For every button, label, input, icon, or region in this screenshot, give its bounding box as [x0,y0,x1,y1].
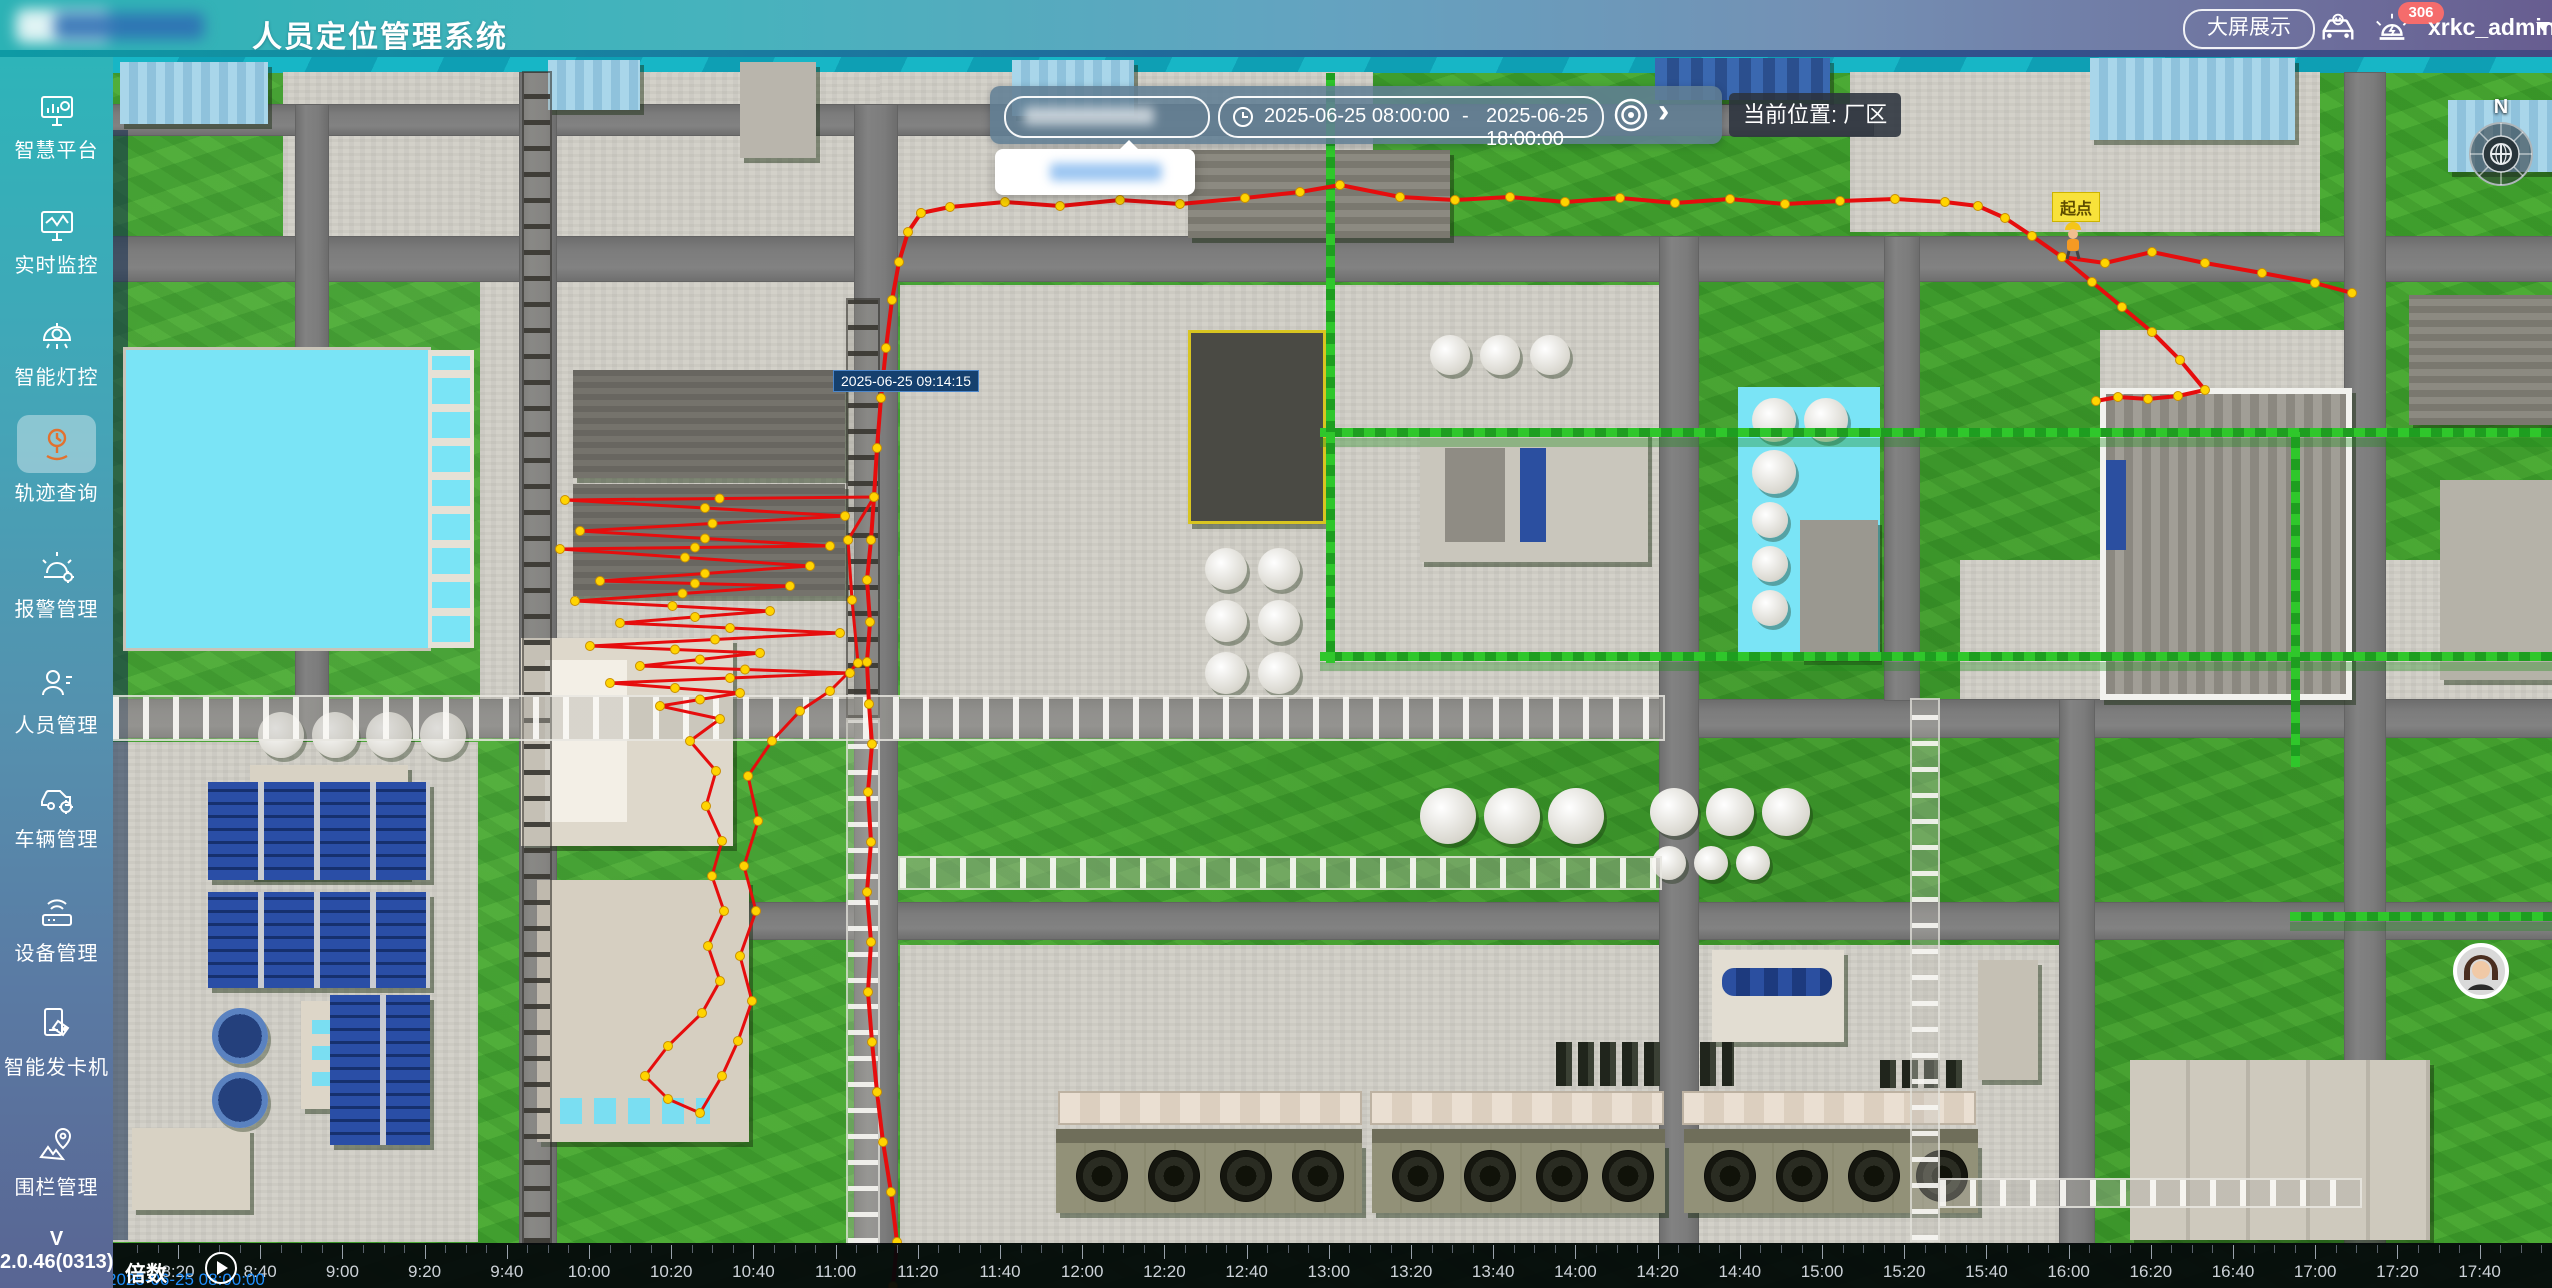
map-tank [1530,335,1570,375]
map-tank [1752,546,1788,582]
map-building [132,1128,250,1210]
map-pipe-rack [113,697,1663,739]
map-building [548,60,640,110]
sidebar-item-device-mgmt[interactable]: 设备管理 [0,893,113,966]
map-green-truss [1326,73,1335,663]
map-fan [1220,1150,1272,1202]
map-fan [1464,1150,1516,1202]
map-sphere [1484,788,1540,844]
sidebar-item-vehicle-mgmt[interactable]: 车辆管理 [0,779,113,852]
clock-icon [1232,106,1254,128]
map-pipe-rack [524,73,550,1243]
map-building [1978,960,2038,1080]
map-cooler-strip [1372,1093,1662,1123]
map-pipe-rack [848,300,878,720]
map-fan [1704,1150,1756,1202]
sidebar-item-smart-platform[interactable]: 智慧平台 [0,92,113,163]
map-green-truss [1320,652,2552,661]
map-fan [1076,1150,1128,1202]
map-building [120,62,268,124]
map-fan [1292,1150,1344,1202]
map-detail [2106,460,2126,550]
sidebar-item-realtime-monitor[interactable]: 实时监控 [0,207,113,278]
map-tank [1258,600,1300,642]
trajectory-tooltip: 2025-06-25 09:14:15 [833,370,979,392]
compass[interactable]: N [2466,96,2536,194]
sidebar-item-card-dispenser[interactable]: 智能发卡机 [0,1005,113,1080]
monitor-pulse-icon [38,207,76,243]
map-windows [560,1098,710,1124]
play-track-button[interactable]: › [1658,92,1669,131]
map-building [1800,520,1878,660]
redacted-search-text [1024,107,1154,125]
map-building [740,62,816,158]
sidebar-item-smart-lighting[interactable]: 智能灯控 [0,319,113,390]
map-building-wing [545,660,627,822]
dropdown-caret [1120,140,1138,149]
map-building [573,484,845,596]
map-solar-array [208,782,430,880]
vehicle-icon[interactable] [2318,10,2358,48]
start-point-label: 起点 [2052,192,2100,222]
map-road [2060,700,2094,1243]
map-fan [1848,1150,1900,1202]
timeline-play-button[interactable] [205,1252,237,1284]
map-detail [1520,448,1546,542]
map-tank [1258,548,1300,590]
track-query-icon [37,423,77,463]
app-header: 人员定位管理系统 大屏展示 306 xrkc_admin [0,0,2552,57]
card-machine-icon [37,1005,77,1045]
map-solar-array [208,892,430,988]
map-tank [1480,335,1520,375]
app-version: V 2.0.46(0313) [0,1228,113,1274]
date-separator: - [1462,105,1469,128]
map-pipe-rack [1940,1180,2360,1206]
person-search-input[interactable] [1004,96,1210,138]
map-building [2440,480,2552,680]
user-menu-caret-icon[interactable] [2536,22,2550,31]
map-pool-cells [432,356,470,642]
map-pipes [1556,1042,1666,1086]
map-sphere [1694,846,1728,880]
header-bottom-stripe [0,50,2552,57]
redacted-suggestion-text [1050,163,1162,181]
map-building [1712,950,1844,1042]
map-sphere [1548,788,1604,844]
map-building [2090,58,2295,140]
map-fan [1392,1150,1444,1202]
map-road [1885,237,1919,700]
map-pipe-rack [848,720,878,1243]
worker-icon[interactable] [2058,220,2088,262]
person-icon [38,665,76,703]
current-location-chip: 当前位置: 厂区 [1729,93,1901,137]
map-pipe-rack [900,858,1660,888]
map-pool [126,350,428,648]
map-tank [1205,652,1247,694]
map-pipes [1700,1042,1734,1086]
map-tank [1752,502,1788,538]
compass-n-label: N [2466,96,2536,119]
company-logo [16,7,221,49]
date-range-picker[interactable]: 2025-06-25 08:00:00 - 2025-06-25 18:00:0… [1218,96,1604,138]
date-start[interactable]: 2025-06-25 08:00:00 [1264,105,1450,128]
map-cooler-strip [1060,1093,1360,1123]
map-fan [1602,1150,1654,1202]
map-green-truss [1320,428,2552,437]
map-tank [1430,335,1470,375]
map-building [1188,150,1450,238]
router-icon [38,893,76,931]
map-detail [1445,448,1505,542]
map-building [2409,295,2552,425]
map-fan [1148,1150,1200,1202]
smart-lamp-icon [38,319,76,355]
date-end[interactable]: 2025-06-25 18:00:00 [1486,105,1602,151]
map-fan [1776,1150,1828,1202]
map-sphere [1650,788,1698,836]
playback-timeline[interactable]: 倍数 2025-06-25 08:00:00 8:208:409:009:209… [113,1243,2552,1288]
map-green-truss [2290,912,2552,921]
map-tank [1205,548,1247,590]
map-sphere [1762,788,1810,836]
map-clarifier [212,1072,268,1128]
alarm-beacon-icon [38,549,76,587]
map-tank [1258,652,1300,694]
map-sphere [1420,788,1476,844]
playback-speed-label[interactable]: 倍数 [125,1258,167,1288]
vehicle-gear-icon [38,779,76,817]
map-blue-tank [1722,968,1832,996]
plant-map[interactable]: 2025-06-25 09:14:15 起点 N [0,0,2552,1288]
big-screen-button[interactable]: 大屏展示 [2183,9,2315,49]
map-building [573,370,845,478]
search-suggestion-dropdown[interactable] [995,149,1195,195]
map-solar-array [330,995,430,1145]
fence-pin-icon [37,1125,77,1165]
sidebar-item-alarm-mgmt[interactable]: 报警管理 [0,549,113,622]
map-tank [1752,450,1796,494]
map-fan [1536,1150,1588,1202]
map-sphere [1736,846,1770,880]
map-tank [1205,600,1247,642]
sidebar-nav: 智慧平台 实时监控 智能灯控 轨迹查询 报警管理 人员管理 车辆 [0,57,113,1288]
sidebar-item-fence-mgmt[interactable]: 围栏管理 [0,1125,113,1200]
map-building [2130,1060,2430,1240]
map-pipe-rack [1912,700,1938,1240]
map-shadow-strip [113,130,128,1240]
locate-icon[interactable] [1612,96,1650,134]
dashboard-icon [38,92,76,128]
sidebar-item-track-query[interactable]: 轨迹查询 [0,423,113,506]
map-tank [1752,590,1788,626]
sidebar-item-personnel-mgmt[interactable]: 人员管理 [0,665,113,738]
track-query-bar: 2025-06-25 08:00:00 - 2025-06-25 18:00:0… [990,86,1722,144]
compass-rose [2466,119,2536,189]
map-sphere [1706,788,1754,836]
map-building [1188,330,1326,524]
map-green-truss [2291,432,2300,767]
person-avatar-marker[interactable] [2452,942,2510,1000]
username[interactable]: xrkc_admin [2428,14,2552,41]
map-clarifier [212,1008,268,1064]
